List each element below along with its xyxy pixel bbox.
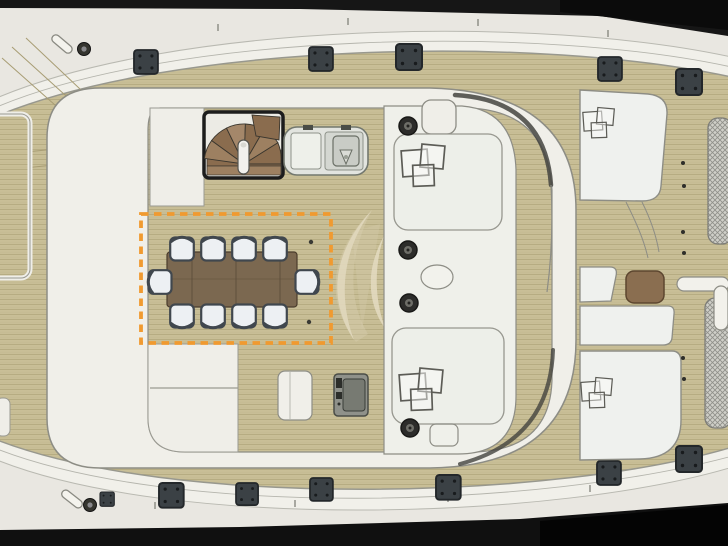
- spiral-staircase: [204, 112, 283, 178]
- sunpad-step: [580, 267, 616, 302]
- deck-hatch: [436, 475, 461, 500]
- dining-chair: [170, 237, 194, 260]
- deck-hatch: [100, 492, 114, 506]
- aft-bench: [278, 371, 312, 420]
- deck-plan-photo: [0, 0, 728, 546]
- cupholder-oval: [421, 265, 453, 289]
- deck-hatch: [134, 50, 158, 74]
- sunpad-forward: [580, 90, 667, 201]
- mesh-grate: [708, 118, 728, 244]
- icemaker-unit: [334, 374, 368, 416]
- console-sunpad-forward: [394, 134, 502, 230]
- deck-plug: [309, 240, 313, 244]
- handrail-vertical: [714, 286, 728, 330]
- deck-hatch: [598, 57, 622, 81]
- grill-station: [284, 125, 368, 175]
- dining-chair: [296, 270, 319, 294]
- deck-plan-drawing: [0, 0, 728, 546]
- sunpad-middle: [580, 306, 674, 345]
- deck-hatch: [676, 446, 702, 472]
- coffee-table: [626, 271, 664, 303]
- console-hatch-outline: [422, 100, 456, 134]
- deck-hatch: [310, 478, 333, 501]
- dining-chair: [263, 305, 287, 328]
- deck-hatch: [309, 47, 333, 71]
- flybridge-floor-white-forward: [150, 108, 204, 206]
- dining-chair: [201, 305, 225, 328]
- side-step-white: [0, 398, 10, 436]
- deck-hatch: [236, 483, 258, 505]
- deck-hatch: [396, 44, 422, 70]
- dining-chair: [170, 305, 194, 328]
- deck-hatch: [159, 483, 184, 508]
- dining-chair: [148, 270, 171, 294]
- dining-chair: [232, 305, 256, 328]
- helm-console: [384, 100, 516, 454]
- deck-hatch: [676, 69, 702, 95]
- deck-hatch: [597, 461, 621, 485]
- deck-plug: [307, 320, 311, 324]
- dining-chair: [232, 237, 256, 260]
- dining-chair: [201, 237, 225, 260]
- side-deck-panel: [0, 114, 30, 278]
- dining-chair: [263, 237, 287, 260]
- flybridge-floor-white-aft: [148, 344, 238, 452]
